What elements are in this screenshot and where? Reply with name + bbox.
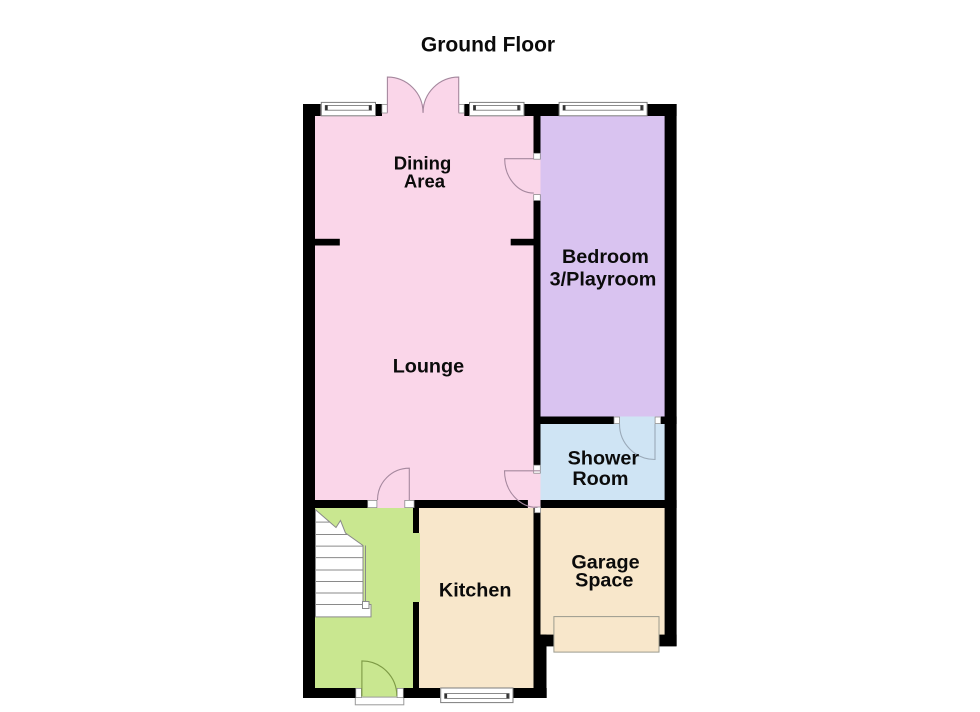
svg-text:Kitchen: Kitchen [439, 580, 512, 602]
svg-text:3/Playroom: 3/Playroom [550, 269, 657, 291]
svg-text:Bedroom: Bedroom [562, 246, 649, 268]
svg-text:Lounge: Lounge [393, 355, 464, 377]
svg-text:Ground Floor: Ground Floor [421, 34, 555, 57]
svg-text:Area: Area [404, 171, 446, 192]
svg-text:Shower: Shower [568, 448, 640, 470]
svg-text:Room: Room [572, 468, 628, 490]
svg-text:Space: Space [575, 570, 633, 592]
